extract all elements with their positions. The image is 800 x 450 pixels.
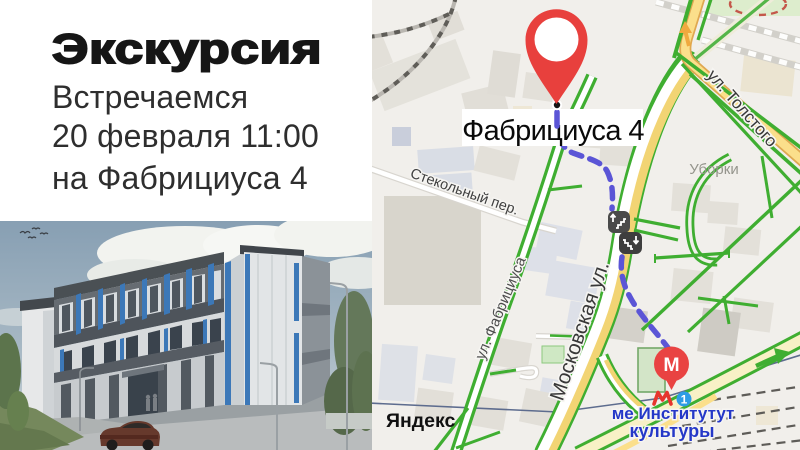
svg-text:Яндекс: Яндекс: [386, 410, 456, 432]
svg-text:культуры: культуры: [629, 421, 714, 441]
svg-text:М: М: [663, 354, 679, 376]
svg-text:Уборки: Уборки: [689, 161, 738, 178]
svg-text:Фабрициуса 4: Фабрициуса 4: [462, 115, 644, 147]
